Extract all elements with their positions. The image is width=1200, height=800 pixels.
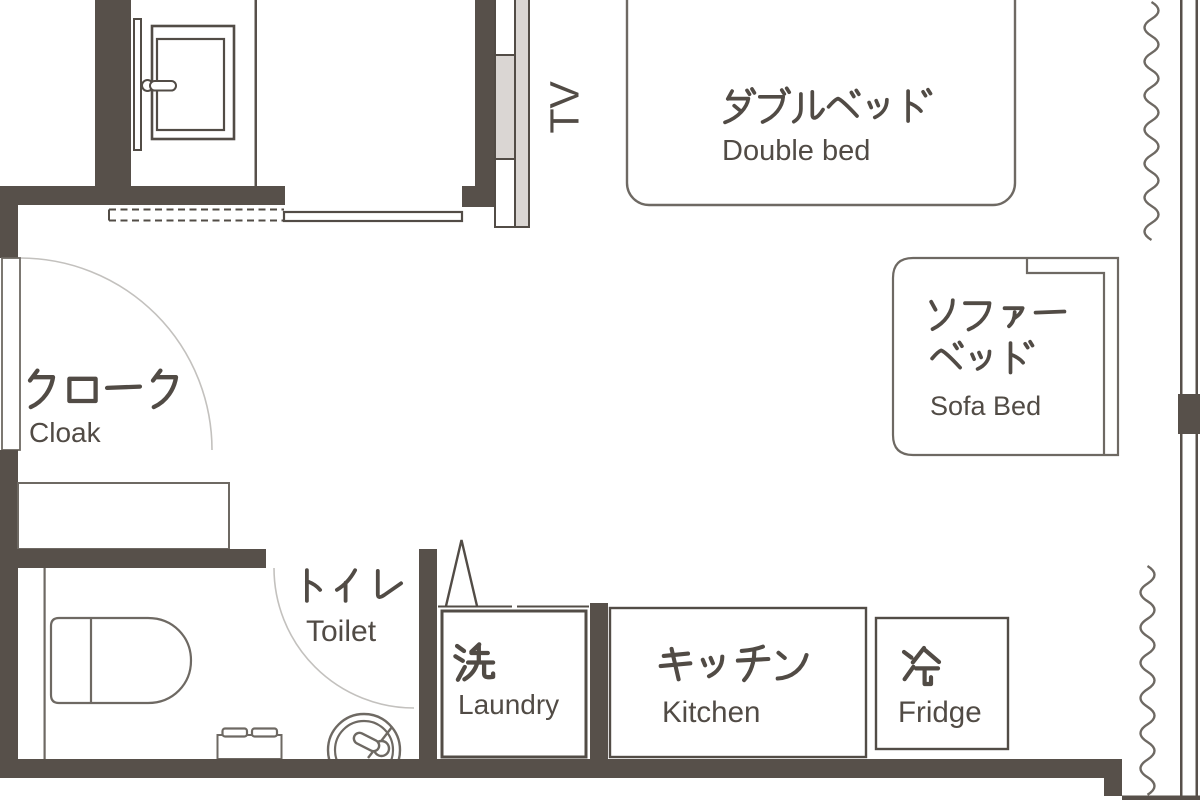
svg-text:Toilet: Toilet xyxy=(306,615,377,648)
svg-text:Fridge: Fridge xyxy=(898,696,982,729)
svg-text:Kitchen: Kitchen xyxy=(662,696,760,729)
svg-text:Double bed: Double bed xyxy=(722,135,870,167)
svg-text:Cloak: Cloak xyxy=(29,417,102,448)
svg-text:Laundry: Laundry xyxy=(458,689,559,720)
svg-text:Sofa Bed: Sofa Bed xyxy=(930,391,1041,421)
svg-text:TV: TV xyxy=(542,80,588,133)
